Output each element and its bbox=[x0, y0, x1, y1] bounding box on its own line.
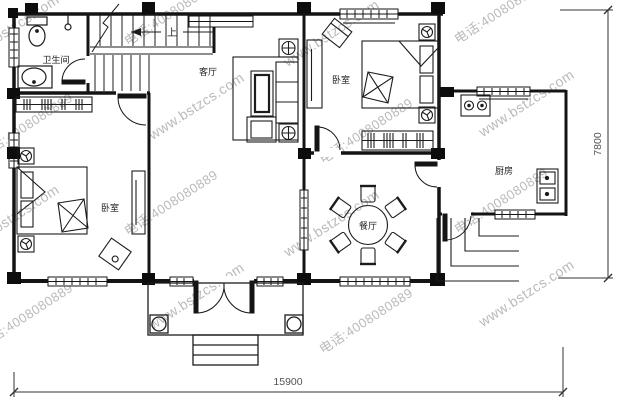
room-label-kitchen: 厨房 bbox=[495, 165, 513, 176]
stair-up-label: 上 bbox=[167, 27, 177, 39]
room-label-bathroom: 卫生间 bbox=[42, 54, 69, 65]
bottom-window-left-of-door bbox=[170, 277, 193, 286]
wardrobe bbox=[362, 131, 433, 150]
armchair bbox=[247, 117, 276, 142]
stair-break-line bbox=[92, 4, 119, 52]
dining-window bbox=[340, 277, 410, 286]
dining-chair bbox=[384, 231, 406, 253]
room-label-bedroom-right: 卧室 bbox=[332, 74, 350, 85]
coffee-table bbox=[251, 71, 273, 116]
kitchen-passage-door bbox=[415, 162, 437, 187]
bedroom-right-door bbox=[315, 126, 340, 151]
kitchen-fixtures bbox=[461, 95, 558, 203]
dining-pass-through-window bbox=[300, 190, 308, 250]
kitchen-sink bbox=[537, 169, 558, 203]
nightstand bbox=[419, 107, 435, 123]
dresser bbox=[132, 171, 145, 234]
bottom-window-bedroom bbox=[48, 277, 107, 286]
porch-column bbox=[285, 315, 303, 333]
side-table-plant bbox=[279, 124, 298, 142]
wardrobe bbox=[16, 97, 92, 112]
chair bbox=[99, 238, 131, 270]
room-label-living: 客厅 bbox=[199, 66, 217, 77]
bedroom-right-furniture bbox=[307, 18, 439, 150]
sofa-cushions bbox=[276, 62, 298, 123]
dining-chair bbox=[360, 248, 376, 264]
side-table-plant bbox=[279, 39, 298, 57]
kitchen-exterior-door bbox=[443, 214, 471, 241]
room-label-bedroom-left: 卧室 bbox=[101, 202, 119, 213]
doors bbox=[62, 59, 471, 313]
quilt bbox=[58, 199, 88, 232]
interior-walls bbox=[14, 14, 441, 281]
dining-chair bbox=[330, 197, 352, 219]
quilt bbox=[363, 72, 393, 103]
dining-chair bbox=[384, 197, 406, 219]
dresser bbox=[307, 40, 322, 108]
toilet bbox=[27, 17, 47, 46]
entry-double-door bbox=[194, 281, 254, 313]
bathroom-fixtures bbox=[18, 15, 71, 88]
stove bbox=[461, 95, 490, 116]
dimension-right-label: 7800 bbox=[592, 132, 604, 156]
nightstand bbox=[18, 148, 34, 164]
floor-plan-drawing: 15900 7800 卫生间 客厅 卧室 卧室 厨房 餐厅 上 bbox=[0, 0, 628, 410]
bathroom-sink bbox=[18, 66, 52, 88]
bed bbox=[362, 41, 439, 108]
bathroom-window bbox=[9, 28, 19, 67]
dining-chair bbox=[360, 186, 376, 202]
pillow bbox=[420, 76, 433, 103]
bedroom-right-window bbox=[340, 9, 398, 23]
nightstand bbox=[419, 24, 435, 40]
dimension-bottom-label: 15900 bbox=[273, 376, 302, 388]
bedroom-left-door bbox=[118, 94, 146, 125]
dining-chair bbox=[330, 231, 352, 253]
dimension-bottom bbox=[10, 347, 567, 397]
living-room-furniture bbox=[233, 39, 298, 142]
side-steps bbox=[437, 218, 519, 281]
shower-drain bbox=[65, 15, 71, 30]
room-label-dining: 餐厅 bbox=[359, 220, 377, 231]
kitchen-bottom-window bbox=[495, 210, 535, 219]
bottom-window-right-of-door bbox=[257, 277, 283, 286]
bedroom-left-furniture bbox=[16, 97, 145, 270]
pillow bbox=[21, 201, 33, 227]
kitchen-top-window bbox=[477, 87, 530, 99]
floor-plan-page: www.bstzcs.com电话:4008080889www.bstzcs.co… bbox=[0, 0, 628, 410]
entry-steps bbox=[193, 335, 258, 365]
porch-column bbox=[150, 315, 168, 333]
nightstand bbox=[18, 236, 34, 252]
